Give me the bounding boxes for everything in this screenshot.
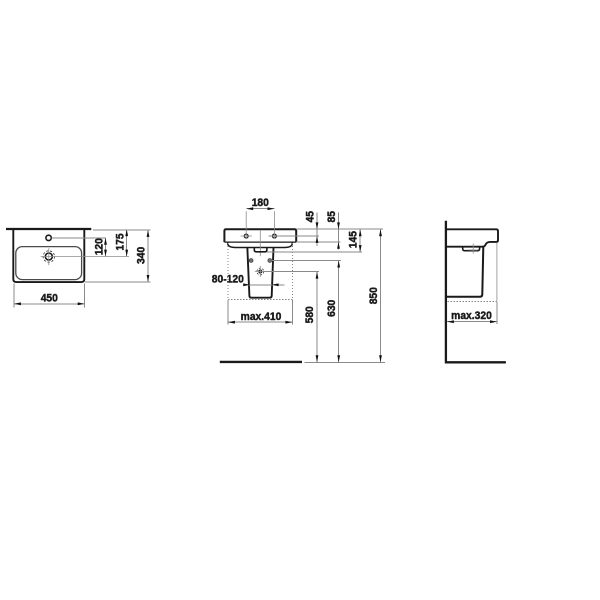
svg-text:180: 180 [252,197,269,209]
svg-text:450: 450 [41,292,58,304]
svg-text:85: 85 [326,211,338,222]
svg-text:175: 175 [114,233,126,250]
svg-text:850: 850 [367,287,379,304]
svg-text:580: 580 [304,306,316,323]
svg-text:45: 45 [304,211,316,222]
svg-text:630: 630 [326,300,338,317]
svg-text:120: 120 [93,238,105,255]
svg-text:145: 145 [347,231,359,248]
svg-text:max.410: max.410 [241,310,282,322]
svg-text:340: 340 [135,247,147,264]
svg-text:max.320: max.320 [451,310,492,322]
